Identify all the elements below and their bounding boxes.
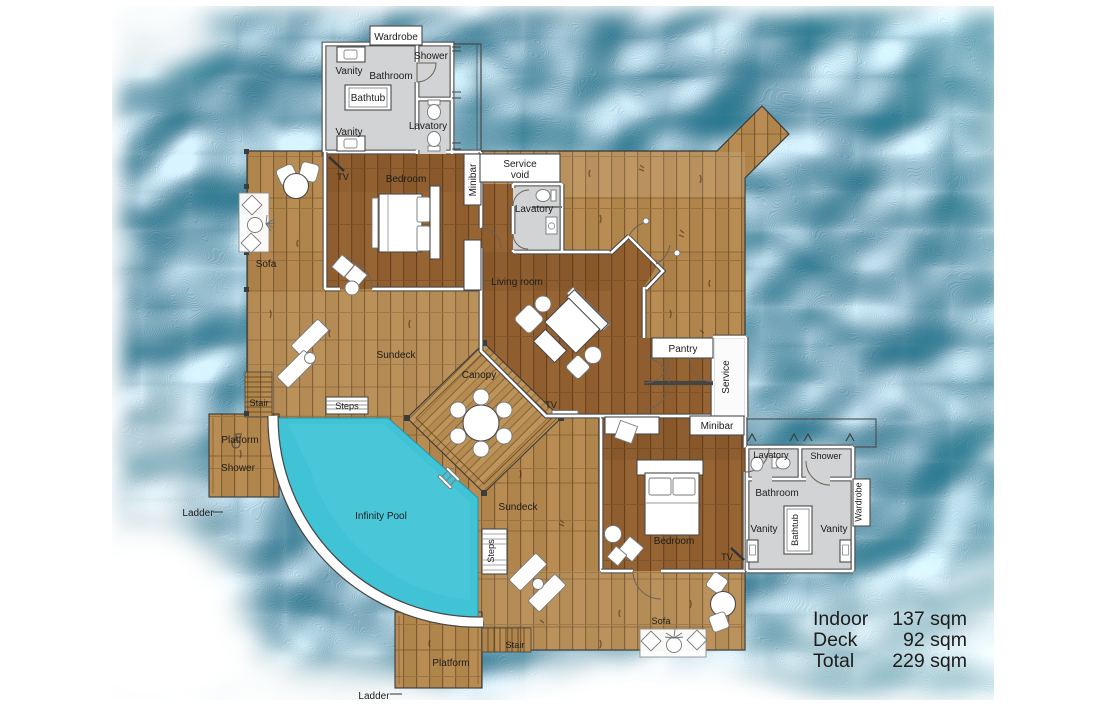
svg-text:Bathroom: Bathroom [755, 488, 798, 499]
svg-text:Indoor: Indoor [813, 608, 869, 630]
svg-text:137 sqm: 137 sqm [892, 608, 967, 630]
svg-text:Vanity: Vanity [750, 524, 777, 535]
svg-text:Bathroom: Bathroom [369, 71, 412, 82]
svg-text:Service: Service [503, 159, 537, 170]
svg-text:TV: TV [337, 172, 350, 182]
svg-text:Shower: Shower [414, 51, 449, 62]
svg-text:Canopy: Canopy [462, 370, 496, 381]
svg-text:Bathtub: Bathtub [351, 93, 386, 104]
svg-text:Minibar: Minibar [701, 421, 734, 432]
svg-text:Platform: Platform [432, 658, 469, 669]
svg-text:Steps: Steps [486, 539, 496, 563]
svg-text:Service: Service [721, 360, 732, 394]
svg-text:Lavatory: Lavatory [409, 121, 447, 132]
svg-text:Minibar: Minibar [468, 163, 479, 196]
svg-text:Bedroom: Bedroom [654, 536, 695, 547]
svg-text:Shower: Shower [810, 451, 841, 461]
svg-text:Lavatory: Lavatory [515, 204, 553, 215]
svg-text:Bathtub: Bathtub [790, 514, 800, 546]
svg-text:Lavatory: Lavatory [753, 450, 789, 460]
svg-text:Sundeck: Sundeck [377, 350, 417, 361]
svg-text:Sundeck: Sundeck [499, 502, 539, 513]
svg-text:Infinity Pool: Infinity Pool [355, 511, 407, 522]
svg-text:Steps: Steps [335, 401, 359, 411]
svg-text:Sofa: Sofa [652, 616, 672, 626]
svg-text:Vanity: Vanity [335, 66, 362, 77]
svg-text:Living room: Living room [491, 277, 543, 288]
svg-text:Ladder: Ladder [358, 691, 390, 702]
svg-text:Wardrobe: Wardrobe [374, 32, 418, 43]
svg-text:Deck: Deck [813, 629, 858, 651]
svg-text:void: void [511, 170, 529, 181]
svg-text:Pantry: Pantry [669, 344, 698, 355]
svg-text:Vanity: Vanity [820, 524, 847, 535]
svg-text:Shower: Shower [221, 463, 256, 474]
svg-text:Platform: Platform [221, 435, 258, 446]
svg-text:Bedroom: Bedroom [386, 174, 427, 185]
svg-text:Stair: Stair [506, 640, 525, 650]
svg-text:Vanity: Vanity [335, 127, 362, 138]
svg-text:Total: Total [813, 650, 854, 672]
svg-text:92 sqm: 92 sqm [903, 629, 967, 651]
svg-text:229 sqm: 229 sqm [892, 650, 967, 672]
svg-text:Sofa: Sofa [256, 259, 277, 270]
svg-text:Stair: Stair [250, 398, 269, 408]
svg-text:Wardrobe: Wardrobe [854, 482, 864, 521]
svg-text:TV: TV [545, 400, 558, 410]
svg-text:TV: TV [721, 552, 734, 562]
svg-text:Ladder: Ladder [182, 508, 214, 519]
